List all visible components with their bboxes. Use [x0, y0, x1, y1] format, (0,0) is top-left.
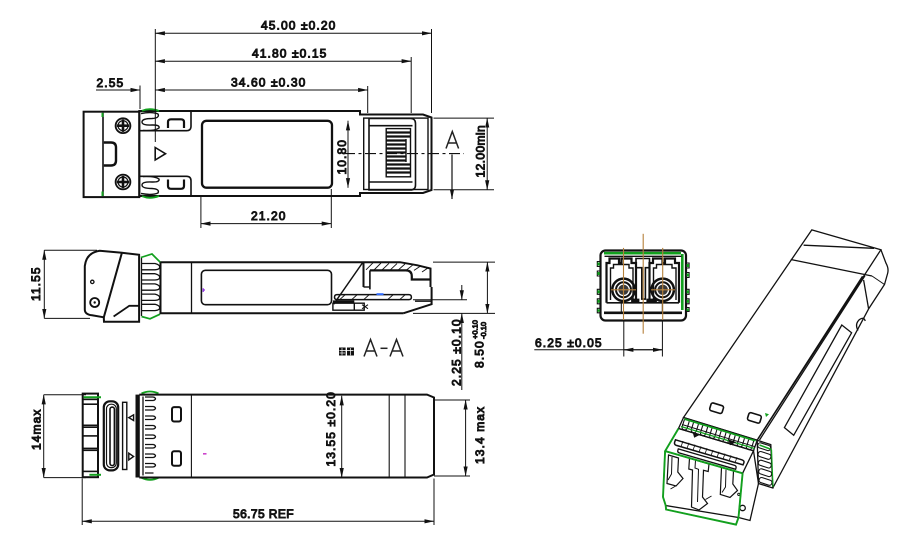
svg-text:2.25 ±0.10: 2.25 ±0.10	[450, 318, 464, 386]
svg-text:11.55: 11.55	[29, 266, 43, 301]
svg-text:-0.10: -0.10	[479, 322, 488, 339]
svg-text:2.55: 2.55	[97, 76, 125, 90]
svg-text:41.80 ±0.15: 41.80 ±0.15	[252, 47, 327, 61]
svg-text:45.00 ±0.20: 45.00 ±0.20	[261, 19, 336, 33]
svg-text:10.80: 10.80	[335, 139, 349, 175]
svg-text:13.4 max: 13.4 max	[473, 406, 487, 464]
svg-text:14max: 14max	[30, 408, 44, 450]
svg-text:8.50: 8.50	[473, 340, 487, 368]
svg-text:21.20: 21.20	[251, 209, 287, 223]
svg-text:6.25 ±0.05: 6.25 ±0.05	[535, 336, 603, 350]
svg-text:12.00min: 12.00min	[474, 125, 488, 178]
svg-text:34.60 ±0.30: 34.60 ±0.30	[231, 76, 306, 90]
svg-text:13.55 ±0.20: 13.55 ±0.20	[324, 391, 338, 466]
svg-text:56.75 REF: 56.75 REF	[233, 507, 294, 521]
